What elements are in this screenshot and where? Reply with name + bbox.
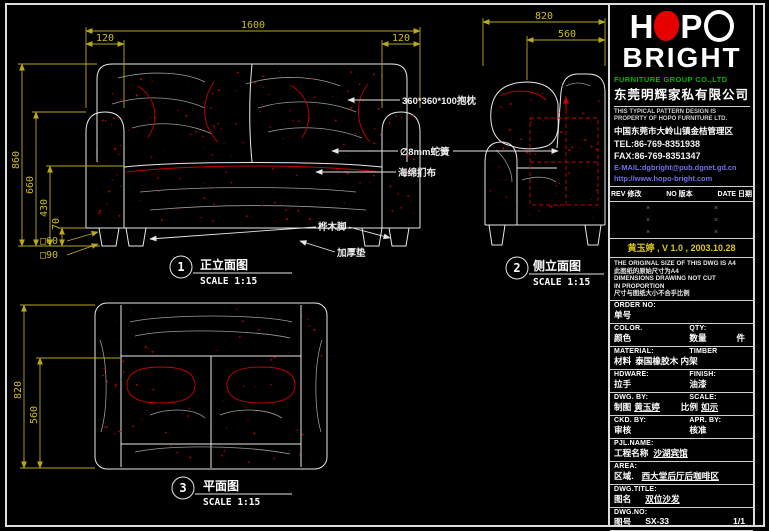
side-view-dimensions: 820 560 (483, 11, 605, 80)
dwgtitle-value: 双位沙发 (645, 493, 679, 505)
field-area: AREA: 区域. 西大堂后厅后咖啡区 (610, 462, 753, 485)
fabric-speckle (490, 85, 601, 221)
logo-hopo: H P (614, 8, 750, 44)
field-dwg-title: DWG.TITLE: 图名 双位沙发 (610, 485, 753, 508)
view3-number: 3 (179, 481, 186, 495)
website-line: http://www.hopo-bright.com (614, 174, 750, 183)
annotation-upholstery: 海绵扪布 (398, 167, 437, 179)
view3-title: 平面图 (203, 479, 239, 493)
rev-mark: × (646, 205, 650, 212)
dim-front-total-width: 1600 (241, 20, 265, 31)
logo-outline-o-icon (704, 10, 734, 42)
qty-label-en: QTY: (689, 325, 751, 332)
field-color-qty: COLOR. QTY: 颜色 数量 件 (610, 324, 753, 347)
dim-front-arm-left: 120 (96, 33, 114, 44)
logo-letter-p: P (680, 10, 702, 43)
dim-plan-total-depth: 820 (13, 381, 24, 399)
hardware-label-en: HDWARE: (614, 371, 689, 378)
fabric-speckle (95, 119, 121, 216)
date-col: DATE 日期 (718, 189, 752, 199)
sheet-notes: THE ORIGINAL SIZE OF THIS DWG IS A4 此图纸的… (610, 258, 753, 301)
note-line: THE ORIGINAL SIZE OF THIS DWG IS A4 (614, 260, 753, 268)
fax-line: FAX:86-769-8351347 (614, 151, 750, 161)
company-address: 中国东莞市大岭山镇金桔管理区 (614, 125, 750, 137)
field-ckd-apr: CKD. BY: APR. BY: 审核 核准 (610, 416, 753, 439)
dim-leg-square-top: □60 (40, 236, 58, 247)
legal-line-2: PROPERTY OF HOPO FURNITURE LTD. (614, 116, 750, 123)
note-line: 尺寸与图纸大小不合乎比例 (614, 290, 753, 298)
view1-number: 1 (177, 260, 184, 274)
rev-mark: × (714, 205, 718, 212)
order-label-cn: 单号 (614, 309, 751, 321)
material-value-cn: 泰国橡胶木 内架 (635, 355, 698, 367)
color-label-en: COLOR. (614, 325, 689, 332)
dim-front-leg-height: 70 (51, 218, 62, 230)
dwgby-value: 黄玉婷 (634, 401, 681, 413)
callout-annotations: 360*360*100抱枕 ∅8mm蛇簧 海绵扪布 桦木脚 加厚垫 (150, 95, 558, 259)
dwgno-label-en: DWG.NO: (614, 509, 751, 516)
sheet-count: 1/1 (733, 516, 751, 528)
front-view-dimensions: 1600 120 120 860 660 430 70 □60 □90 (11, 20, 420, 261)
field-hardware-finish: HDWARE: FINISH: 拉手 油漆 (610, 370, 753, 393)
material-label-cn: 材料 (614, 355, 631, 367)
rev-mark: × (714, 217, 718, 224)
revision-table-header: REV 修改 NO 版本 DATE 日期 (610, 187, 753, 202)
ckdby-label-cn: 审核 (614, 424, 689, 436)
dim-front-arm-height: 660 (25, 176, 36, 194)
aprby-label-en: APR. BY: (689, 417, 751, 424)
area-value: 西大堂后厅后咖啡区 (642, 470, 719, 482)
dim-side-seat-depth: 560 (558, 29, 576, 40)
view2-title: 侧立面图 (533, 258, 581, 273)
view2-scale: SCALE 1:15 (533, 277, 590, 288)
company-name-en: FURNITURE GROUP CO.,LTD (614, 75, 750, 84)
project-label-en: PJL.NAME: (614, 440, 751, 447)
view1-balloon: 1 正立面图 SCALE 1:15 (170, 256, 292, 287)
plan-view-drawing (95, 303, 327, 469)
view1-title: 正立面图 (200, 257, 248, 272)
email-line: E-MAIL:dgbright@pub.dgnet.gd.cn (614, 163, 750, 172)
dwgno-value: SX-33 (645, 516, 669, 528)
view3-balloon: 3 平面图 SCALE 1:15 (172, 477, 292, 508)
logo-red-o-icon (654, 11, 679, 41)
area-label-cn: 区域. (614, 470, 634, 482)
rev-mark: × (714, 229, 718, 236)
area-label-en: AREA: (614, 463, 751, 470)
note-line: 此图纸的原始尺寸为A4 (614, 268, 753, 276)
title-block: H P BRIGHT FURNITURE GROUP CO.,LTD 东莞明辉家… (608, 5, 755, 526)
annotation-pillow: 360*360*100抱枕 (402, 95, 476, 107)
side-view-drawing (485, 74, 605, 245)
annotation-pad: 加厚垫 (336, 247, 366, 259)
annotation-leg: 桦木脚 (317, 221, 347, 233)
qty-unit: 件 (736, 332, 751, 344)
revision-row: × × (614, 202, 750, 214)
dwgby-label-en: DWG. BY: (614, 394, 689, 401)
dwgby-label-cn: 制图 (614, 401, 631, 413)
logo-letter-h: H (630, 10, 654, 43)
dim-leg-square-bottom: □90 (40, 250, 58, 261)
field-dwgby-scale: DWG. BY: SCALE: 制图 黄玉婷 比例 如示 (610, 393, 753, 416)
revision-row: × × (614, 214, 750, 226)
view2-balloon: 2 侧立面图 SCALE 1:15 (506, 257, 604, 288)
dim-front-total-height: 860 (11, 151, 22, 169)
aprby-label-cn: 核准 (689, 424, 751, 436)
note-line: DIMENSIONS DRAWING NOT CUT (614, 275, 753, 283)
fabric-speckle (105, 72, 244, 158)
legal-line-1: THIS TYPICAL PATTERN DESIGN IS (614, 109, 750, 116)
field-order-no: ORDER NO: 单号 (610, 301, 753, 324)
rev-mark: × (646, 217, 650, 224)
field-dwg-no: DWG.NO: 图号 SX-33 1/1 (610, 508, 753, 531)
rev-mark: × (646, 229, 650, 236)
plan-view-dimensions: 820 560 (13, 305, 121, 468)
rev-col: REV 修改 (611, 189, 641, 199)
hardware-label-cn: 拉手 (614, 378, 689, 390)
no-col: NO 版本 (666, 189, 692, 199)
material-label-en: MATERIAL: (614, 348, 689, 355)
ckdby-label-en: CKD. BY: (614, 417, 689, 424)
view2-number: 2 (513, 261, 520, 275)
dim-plan-seat-depth: 560 (29, 406, 40, 424)
dwgtitle-label-cn: 图名 (614, 493, 631, 505)
revision-row: × × (614, 226, 750, 238)
project-value: 沙湖宾馆 (653, 447, 687, 459)
finish-label-cn: 油漆 (689, 378, 751, 390)
dim-front-seat-height: 430 (39, 199, 50, 217)
logo-bright: BRIGHT (614, 44, 750, 72)
dim-front-arm-right: 120 (392, 33, 410, 44)
material-value-en: TIMBER (689, 348, 751, 355)
view1-scale: SCALE 1:15 (200, 276, 257, 287)
scale-label-cn: 比例 (681, 401, 698, 413)
tel-line: TEL:86-769-8351938 (614, 139, 750, 149)
company-name-cn: 东莞明辉家私有限公司 (614, 84, 750, 107)
project-label-cn: 工程名称 (614, 447, 648, 459)
field-material: MATERIAL: TIMBER 材料 泰国橡胶木 内架 (610, 347, 753, 370)
cad-sheet: 1600 120 120 860 660 430 70 □60 □90 (0, 0, 769, 531)
scale-label-en: SCALE: (689, 394, 751, 401)
fabric-speckle (140, 168, 375, 222)
front-view-drawing (86, 64, 420, 246)
order-label-en: ORDER NO: (614, 302, 751, 309)
color-label-cn: 颜色 (614, 332, 689, 344)
finish-label-en: FINISH: (689, 371, 751, 378)
qty-label-cn: 数量 (689, 332, 706, 344)
fabric-speckle (255, 71, 397, 156)
scale-value: 如示 (701, 401, 718, 413)
dwgno-label-cn: 图号 (614, 516, 631, 528)
annotation-spring: ∅8mm蛇簧 (400, 146, 450, 158)
fabric-speckle (389, 115, 415, 213)
field-project-name: PJL.NAME: 工程名称 沙湖宾馆 (610, 439, 753, 462)
view3-scale: SCALE 1:15 (203, 497, 260, 508)
dwgtitle-label-en: DWG.TITLE: (614, 486, 751, 493)
dim-side-total-depth: 820 (535, 11, 553, 22)
signature-version-date: 黄玉婷 , V 1.0 , 2003.10.28 (610, 238, 753, 258)
